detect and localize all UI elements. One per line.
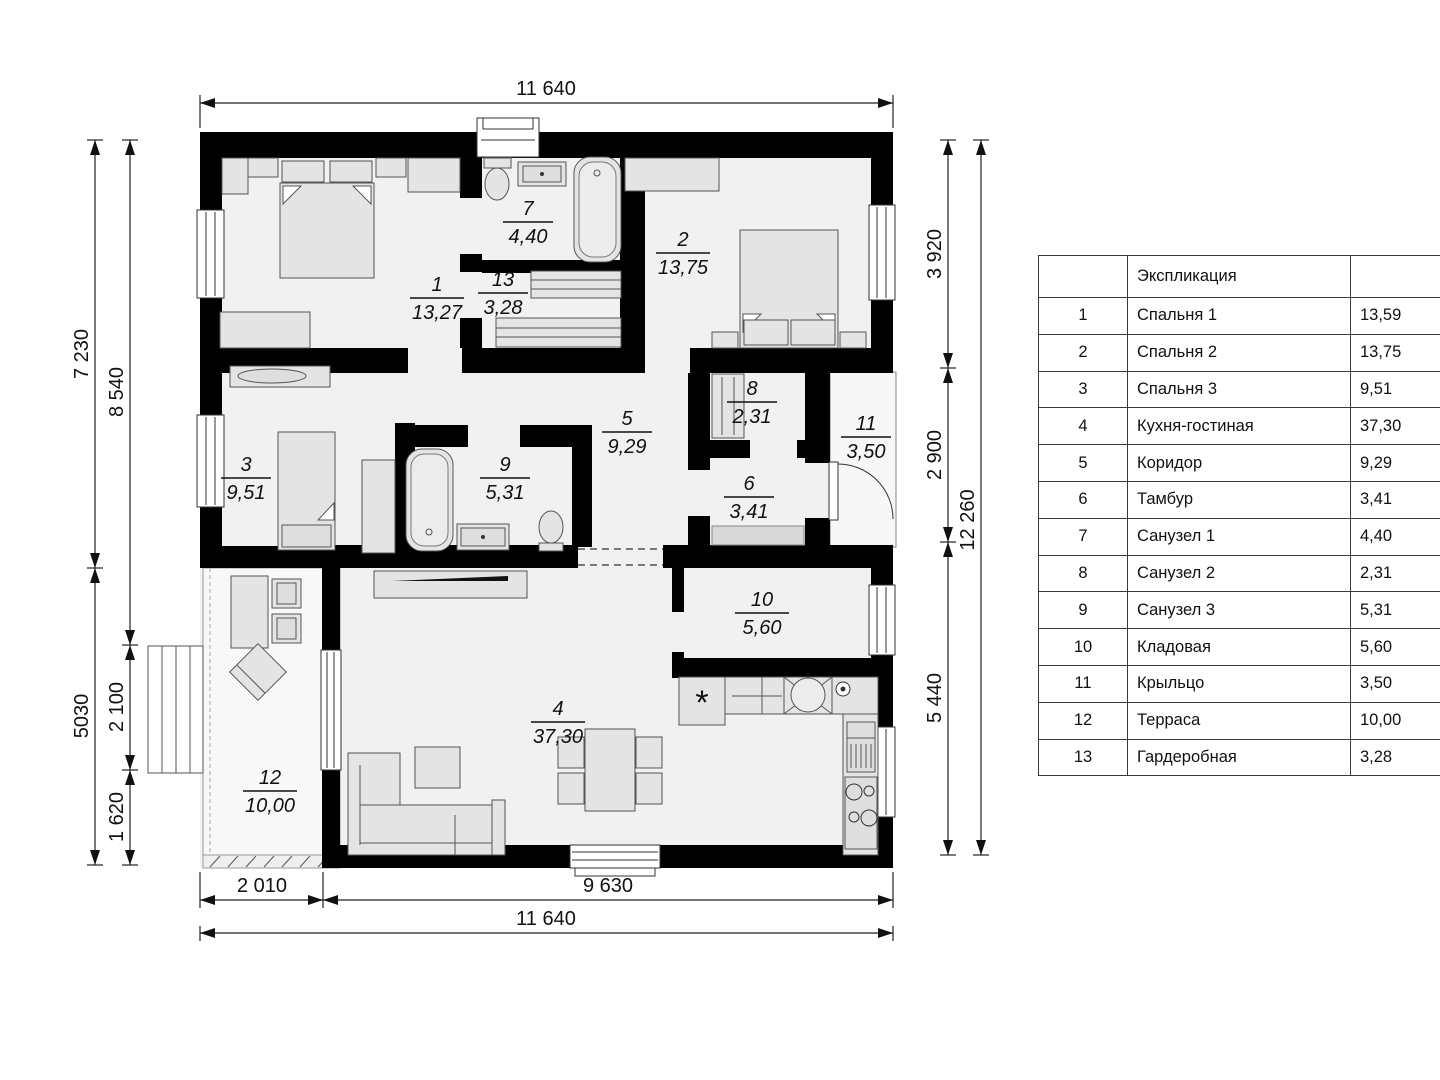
- row-num: 2: [1039, 334, 1128, 371]
- table-title: Экспликация: [1128, 256, 1351, 298]
- table-row: 7Санузел 14,40: [1039, 518, 1440, 555]
- svg-text:13,27: 13,27: [412, 302, 463, 324]
- svg-text:3: 3: [240, 454, 251, 476]
- table-row: 1Спальня 113,59: [1039, 298, 1440, 335]
- table-row: 12Терраса10,00: [1039, 702, 1440, 739]
- row-name: Спальня 2: [1128, 334, 1351, 371]
- svg-text:5: 5: [621, 408, 633, 430]
- svg-text:4: 4: [552, 698, 563, 720]
- dim-left-lower: 5030: [71, 694, 93, 739]
- table-row: 2Спальня 213,75: [1039, 334, 1440, 371]
- svg-text:9,51: 9,51: [227, 482, 266, 504]
- window-room3: [197, 415, 224, 507]
- table-row: 6Тамбур3,41: [1039, 481, 1440, 518]
- table-row: 8Санузел 22,31: [1039, 555, 1440, 592]
- row-area: 13,75: [1351, 334, 1440, 371]
- table-row: 3Спальня 39,51: [1039, 371, 1440, 408]
- explication-table: Экспликация 1Спальня 113,59 2Спальня 213…: [1038, 255, 1440, 776]
- dim-right-total: 12 260: [957, 489, 979, 550]
- svg-text:4,40: 4,40: [509, 226, 548, 248]
- floor-plan-page: *: [0, 0, 1440, 1080]
- row-area: 13,59: [1351, 298, 1440, 335]
- svg-text:10,00: 10,00: [245, 795, 295, 817]
- room6-mat: [712, 526, 804, 545]
- svg-text:3,41: 3,41: [730, 501, 769, 523]
- row-name: Гардеробная: [1128, 739, 1351, 776]
- row-name: Крыльцо: [1128, 665, 1351, 702]
- svg-text:12: 12: [259, 767, 281, 789]
- svg-text:13,75: 13,75: [658, 257, 709, 279]
- svg-text:2: 2: [676, 229, 688, 251]
- row-name: Спальня 3: [1128, 371, 1351, 408]
- dim-bottom-right: 9 630: [583, 875, 633, 897]
- svg-text:3,28: 3,28: [484, 297, 523, 319]
- dim-left-inner-upper: 8 540: [106, 367, 128, 417]
- dishwasher-symbol: *: [695, 684, 708, 722]
- row-num: 10: [1039, 629, 1128, 666]
- svg-text:11: 11: [856, 413, 877, 435]
- row-num: 12: [1039, 702, 1128, 739]
- window-room1: [197, 210, 224, 298]
- svg-text:5,31: 5,31: [486, 482, 525, 504]
- row-name: Коридор: [1128, 445, 1351, 482]
- row-name: Санузел 2: [1128, 555, 1351, 592]
- row-num: 11: [1039, 665, 1128, 702]
- window-room10: [869, 585, 895, 655]
- row-num: 8: [1039, 555, 1128, 592]
- row-area: 3,41: [1351, 481, 1440, 518]
- dim-bottom-total: 11 640: [516, 908, 576, 930]
- row-area: 9,29: [1351, 445, 1440, 482]
- row-area: 5,31: [1351, 592, 1440, 629]
- dim-right-top: 3 920: [924, 229, 946, 279]
- dim-left-inner-mid: 2 100: [106, 682, 128, 732]
- row-area: 3,28: [1351, 739, 1440, 776]
- row-area: 9,51: [1351, 371, 1440, 408]
- row-name: Санузел 1: [1128, 518, 1351, 555]
- svg-text:6: 6: [743, 473, 755, 495]
- table-row: 5Коридор9,29: [1039, 445, 1440, 482]
- svg-text:37,30: 37,30: [533, 726, 583, 748]
- row-num: 3: [1039, 371, 1128, 408]
- dim-top: 11 640: [516, 78, 576, 100]
- dim-right-low: 5 440: [924, 673, 946, 723]
- table-row: 10Кладовая5,60: [1039, 629, 1440, 666]
- svg-text:13: 13: [492, 269, 514, 291]
- svg-text:9: 9: [499, 454, 510, 476]
- dim-left-inner-low: 1 620: [106, 792, 128, 842]
- row-area: 2,31: [1351, 555, 1440, 592]
- table-row: 13Гардеробная3,28: [1039, 739, 1440, 776]
- dim-right-mid: 2 900: [924, 430, 946, 480]
- row-num: 5: [1039, 445, 1128, 482]
- svg-text:5,60: 5,60: [743, 617, 782, 639]
- row-name: Кладовая: [1128, 629, 1351, 666]
- row-num: 7: [1039, 518, 1128, 555]
- row-name: Кухня-гостиная: [1128, 408, 1351, 445]
- terrace-glass-door: [321, 650, 341, 770]
- window-room2: [869, 205, 895, 300]
- row-name: Тамбур: [1128, 481, 1351, 518]
- terrace-steps: [148, 646, 203, 773]
- svg-text:7: 7: [522, 198, 534, 220]
- row-name: Санузел 3: [1128, 592, 1351, 629]
- row-area: 37,30: [1351, 408, 1440, 445]
- svg-text:10: 10: [751, 589, 773, 611]
- dim-bottom-left: 2 010: [237, 875, 287, 897]
- svg-text:8: 8: [746, 378, 757, 400]
- row-area: 3,50: [1351, 665, 1440, 702]
- row-name: Терраса: [1128, 702, 1351, 739]
- table-row: 4Кухня-гостиная37,30: [1039, 408, 1440, 445]
- row-area: 4,40: [1351, 518, 1440, 555]
- svg-text:2,31: 2,31: [732, 406, 772, 428]
- chimney: [477, 118, 539, 157]
- row-num: 13: [1039, 739, 1128, 776]
- row-num: 1: [1039, 298, 1128, 335]
- header-area-cell: [1351, 256, 1440, 298]
- entrance-window: [570, 845, 660, 876]
- table-row: 9Санузел 35,31: [1039, 592, 1440, 629]
- dim-left-upper: 7 230: [71, 329, 93, 379]
- svg-text:9,29: 9,29: [608, 436, 647, 458]
- row-area: 10,00: [1351, 702, 1440, 739]
- row-num: 4: [1039, 408, 1128, 445]
- svg-text:3,50: 3,50: [847, 441, 886, 463]
- row-num: 6: [1039, 481, 1128, 518]
- row-area: 5,60: [1351, 629, 1440, 666]
- row-name: Спальня 1: [1128, 298, 1351, 335]
- row-num: 9: [1039, 592, 1128, 629]
- explication-header: Экспликация: [1039, 256, 1440, 298]
- svg-text:1: 1: [431, 274, 442, 296]
- header-num-cell: [1039, 256, 1128, 298]
- table-row: 11Крыльцо3,50: [1039, 665, 1440, 702]
